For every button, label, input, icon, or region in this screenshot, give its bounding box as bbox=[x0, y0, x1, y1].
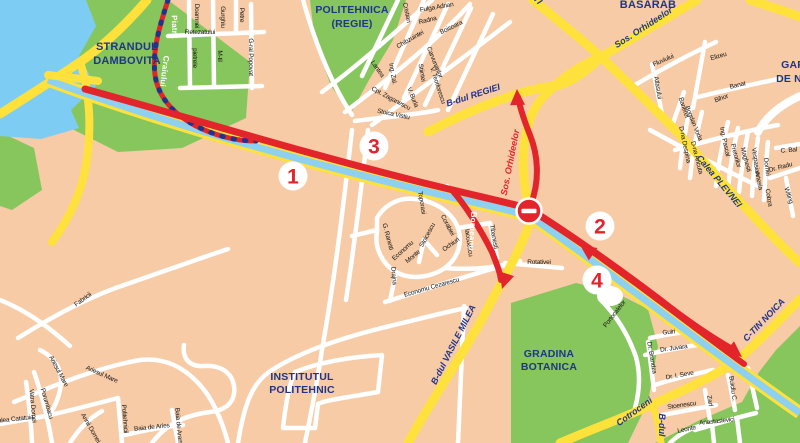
area-label: GRADINA bbox=[524, 348, 575, 360]
street-label: Retezatului bbox=[185, 29, 215, 36]
route-marker: 3 bbox=[360, 132, 389, 161]
road-white bbox=[180, 86, 262, 88]
street-label: Petre bbox=[238, 8, 245, 23]
area-label: BASARAB bbox=[620, 0, 676, 11]
map-canvas: RetezatuluiDoamneiGurghiuPetrepietreleM-… bbox=[0, 0, 800, 443]
road-white bbox=[737, 418, 740, 443]
area-label: POLITEHNICA bbox=[315, 4, 389, 16]
map[interactable]: RetezatuluiDoamneiGurghiuPetrepietreleM-… bbox=[0, 0, 800, 443]
route-marker: 4 bbox=[583, 266, 612, 295]
route-marker-number: 4 bbox=[591, 270, 603, 293]
road-white bbox=[189, 0, 190, 87]
area-label: GARA bbox=[781, 59, 800, 71]
road-white bbox=[213, 0, 214, 85]
street-label: Rotativei bbox=[527, 259, 551, 266]
no-entry-bar bbox=[522, 209, 537, 213]
street-label: C. Bal bbox=[780, 146, 798, 154]
street-label: G-ral Popovat bbox=[247, 38, 254, 76]
street-label: pietrele bbox=[191, 48, 198, 68]
area-label: STRANDUL bbox=[96, 41, 158, 53]
street-label: Guiri bbox=[662, 328, 675, 336]
route-marker-number: 2 bbox=[594, 216, 606, 239]
route-marker-number: 3 bbox=[368, 136, 380, 159]
street-label: Gurghiu bbox=[219, 6, 226, 28]
area-label: POLITEHNIC bbox=[269, 384, 335, 396]
route-marker: 2 bbox=[586, 212, 615, 241]
area-label: INSTITUTUL bbox=[270, 371, 334, 383]
route-marker: 1 bbox=[279, 162, 308, 191]
route-marker-number: 1 bbox=[287, 166, 299, 189]
street-label: Doamnei bbox=[193, 4, 200, 29]
street-label: M-til bbox=[216, 50, 223, 62]
road-label: B-dul bbox=[657, 414, 667, 437]
area-label: DAMBOVITA bbox=[93, 55, 161, 67]
road-white bbox=[712, 424, 714, 443]
area-label: DE NORD bbox=[776, 73, 800, 85]
area-label: (REGIE) bbox=[331, 18, 372, 30]
area-label: BOTANICA bbox=[521, 361, 577, 373]
red-road-label: Piatra bbox=[170, 15, 180, 39]
no-entry-sign bbox=[517, 199, 542, 224]
area-label: SPORTIVA bbox=[325, 0, 380, 1]
